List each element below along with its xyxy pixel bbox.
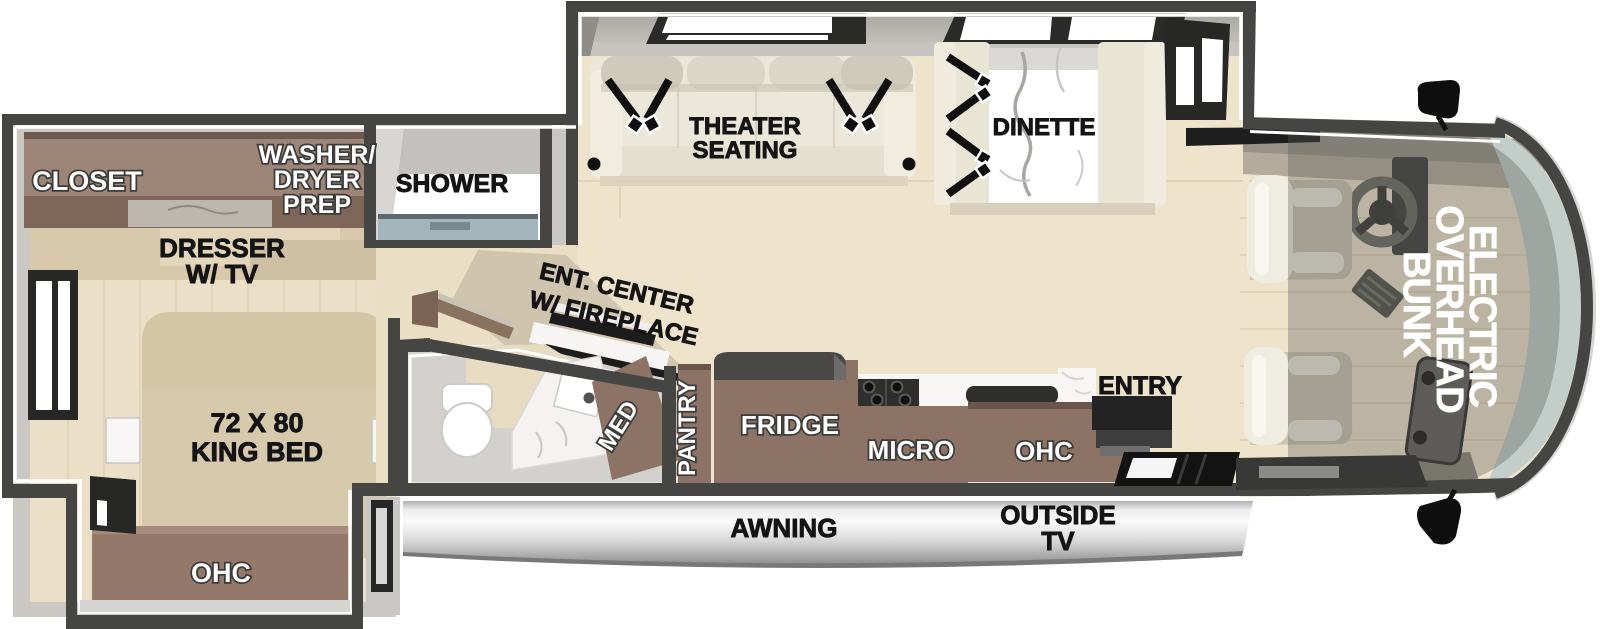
- svg-text:THEATER: THEATER: [689, 113, 801, 140]
- svg-text:FRIDGE: FRIDGE: [741, 410, 839, 440]
- svg-text:TV: TV: [1041, 526, 1075, 556]
- svg-text:WASHER/: WASHER/: [259, 141, 376, 169]
- svg-text:OHC: OHC: [191, 558, 251, 588]
- svg-text:CLOSET: CLOSET: [32, 166, 142, 196]
- svg-text:MICRO: MICRO: [868, 435, 955, 465]
- svg-text:OHC: OHC: [1015, 436, 1073, 466]
- svg-text:ENTRY: ENTRY: [1098, 372, 1182, 400]
- svg-text:SEATING: SEATING: [693, 137, 798, 164]
- svg-text:PANTRY: PANTRY: [674, 380, 701, 476]
- svg-text:SHOWER: SHOWER: [396, 170, 509, 198]
- svg-text:KING BED: KING BED: [191, 437, 323, 467]
- svg-text:PREP: PREP: [283, 191, 351, 219]
- svg-text:AWNING: AWNING: [731, 513, 838, 543]
- svg-text:W/ TV: W/ TV: [186, 259, 259, 289]
- svg-text:BUNK: BUNK: [1395, 251, 1437, 358]
- svg-text:DINETTE: DINETTE: [993, 114, 1096, 141]
- svg-text:72 X 80: 72 X 80: [210, 408, 303, 438]
- svg-text:DRYER: DRYER: [274, 166, 361, 194]
